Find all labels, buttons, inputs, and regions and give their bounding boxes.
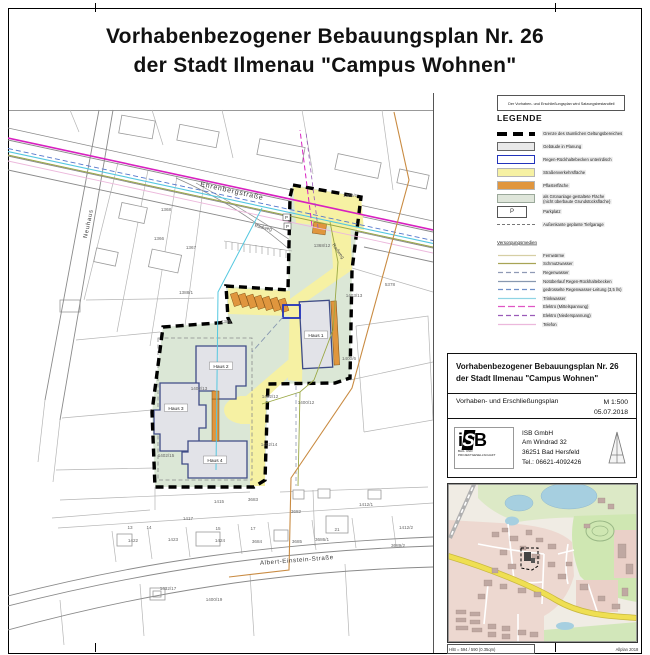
satzung-note-text: Der Vorhaben- und Erschließungsplan wird… (508, 101, 614, 106)
legend-utility-item: Regenwasser (497, 268, 639, 277)
legend-label: Telefon (542, 321, 558, 326)
utility-line-icon (497, 287, 537, 292)
legend-label: Regen-Rückhaltebecken unterirdisch (542, 157, 613, 162)
parcel-label: 1412/1 (359, 502, 373, 507)
page-title: Vorhabenbezogener Bebauungsplan Nr. 26 d… (0, 22, 650, 80)
legend-item: Regen-Rückhaltebecken unterirdisch (497, 153, 639, 166)
title-block-title: Vorhabenbezogener Bebauungsplan Nr. 26 d… (448, 354, 636, 393)
legend-utility-item: Trinkwasser (497, 294, 639, 303)
legend-item: Pflasterfläche (497, 179, 639, 192)
parcel-label: 1367 (186, 245, 197, 250)
legend-utility-item: Schmutzwasser (497, 260, 639, 269)
company-street: Am Windrad 32 (522, 438, 606, 448)
parcel-label: 1402/15 (158, 453, 175, 458)
company-address: ISB GmbH Am Windrad 32 36251 Bad Hersfel… (522, 429, 606, 468)
page-title-line2: der Stadt Ilmenau "Campus Wohnen" (0, 51, 650, 80)
minimap-caption: H/B = 594 / 590 (0.35qm) Allplan 2018 (447, 645, 638, 654)
utility-line-icon (497, 296, 537, 301)
legend-label: als Grünanlage gestaltete Fläche(nicht ü… (542, 193, 612, 203)
logo-subtext: BAU- UND PROJEKTGESELLSCHAFT (458, 450, 484, 458)
legend-label: gedrosselte Regenwasser-Leitung (3,5 l/s… (542, 287, 623, 292)
legend-swatch-fill-icon (497, 168, 537, 177)
satzung-note: Der Vorhaben- und Erschließungsplan wird… (497, 95, 625, 111)
house-label: Haus 2 (213, 364, 229, 370)
frame-tick (95, 3, 96, 12)
legend-label: Trinkwasser (542, 296, 567, 301)
legend-label: Grenze des räumlichen Geltungsbereiches (542, 131, 623, 136)
parcel-label: 1368/6 (343, 193, 357, 198)
legend-utility-item: Telefon (497, 320, 639, 329)
legend-utility-item: gedrosselte Regenwasser-Leitung (3,5 l/s… (497, 285, 639, 294)
parcel-label: 1368 (161, 207, 172, 212)
legend-swatch-p-icon: P (497, 206, 537, 218)
parcel-label: 21 (334, 527, 340, 532)
house-label: Haus 1 (308, 333, 324, 339)
parcel-label: 1422 (128, 538, 139, 543)
plot-size-note: H/B = 594 / 590 (0.35qm) (449, 647, 495, 652)
legend-swatch-fill-icon (497, 181, 537, 190)
parcel-label: 1402/13 (191, 386, 208, 391)
scale-date: M 1:500 05.07.2018 (594, 398, 628, 414)
legend-item: Außenkante geplante Tiefgarage (497, 218, 639, 231)
parcel-label: 1366 (154, 236, 165, 241)
parking-letter: P (286, 224, 289, 229)
parcel-label: 3685 (292, 539, 303, 544)
legend-area-items: Grenze des räumlichen GeltungsbereichesG… (497, 127, 639, 231)
legend-swatch-fill-icon (497, 142, 537, 151)
parcel-label: 1368/12 (314, 243, 331, 248)
legend-label: Schmutzwasser (542, 261, 574, 266)
parcel-label: 13 (127, 525, 133, 530)
legend-label: Elektro (Mittelspannung) (542, 304, 590, 309)
parcel-label: 1417 (183, 516, 194, 521)
legend-item: Gebäude in Planung (497, 140, 639, 153)
title-block-subtitle-row: Vorhaben- und Erschließungsplan M 1:500 … (448, 393, 636, 418)
house-label: Haus 3 (168, 406, 184, 412)
page-title-line1: Vorhabenbezogener Bebauungsplan Nr. 26 (0, 22, 650, 51)
legend-item: als Grünanlage gestaltete Fläche(nicht ü… (497, 192, 639, 205)
company-phone: Tel.: 06621-4092426 (522, 458, 606, 468)
legend-label: Pflasterfläche (542, 183, 570, 188)
legend-label: Fernwärme (542, 253, 565, 258)
parcel-label: 1402/12 (262, 394, 279, 399)
scale-label: M 1:500 (594, 398, 628, 408)
plan-sheet: Vorhabenbezogener Bebauungsplan Nr. 26 d… (0, 0, 650, 655)
parcel-label: 17 (250, 526, 256, 531)
legend-swatch-boundary-icon (497, 132, 537, 136)
utility-line-icon (497, 304, 537, 309)
legend-swatch-fill-icon (497, 194, 537, 203)
parcel-label: 1402/14 (261, 442, 278, 447)
utility-line-icon (497, 261, 537, 266)
parcel-label: 5378 (385, 282, 396, 287)
parcel-label: 3686/1 (315, 537, 329, 542)
title-block: Vorhabenbezogener Bebauungsplan Nr. 26 d… (447, 353, 637, 478)
legend-panel: LEGENDE Grenze des räumlichen Geltungsbe… (497, 113, 639, 328)
parcel-label: 1400/12 (298, 400, 315, 405)
legend-swatch-dash-icon (497, 224, 537, 225)
utility-line-icon (497, 270, 537, 275)
stadium (586, 521, 614, 541)
panel-divider (433, 93, 434, 653)
parcel-label: 3684 (252, 539, 263, 544)
parcel-label: 1412/2 (399, 525, 413, 530)
parcel-label: 1423 (168, 537, 179, 542)
parcel-label: 3689/2 (391, 543, 405, 548)
software-credit: Allplan 2018 (615, 647, 638, 652)
parcel-label: 1432/17 (160, 586, 177, 591)
parcel-label: 14 (146, 525, 152, 530)
legend-label: Parkplatz (542, 209, 562, 214)
frame-tick (555, 3, 556, 12)
legend-utility-item: Elektro (Niederspannung) (497, 311, 639, 320)
legend-swatch-fill-icon (497, 155, 537, 164)
parking-letter: P (285, 215, 288, 220)
legend-utility-item: Elektro (Mittelspannung) (497, 303, 639, 312)
parcel-label: 1400/19 (206, 597, 223, 602)
street-label: Albert-Einstein-Straße (260, 554, 334, 567)
utility-line-icon (497, 313, 537, 318)
parcel-label: 1388/1 (179, 290, 193, 295)
company-city: 36251 Bad Hersfeld (522, 448, 606, 458)
parcel-label: 3683 (248, 497, 259, 502)
legend-label: Regenwasser (542, 270, 570, 275)
utility-line-icon (497, 322, 537, 327)
company-name: ISB GmbH (522, 429, 606, 439)
legend-label: Notüberlauf Regen-Rückhaltebecken (542, 278, 613, 283)
legend-label: Außenkante geplante Tiefgarage (542, 222, 605, 227)
location-minimap (447, 483, 638, 643)
house-label: Haus 4 (207, 458, 223, 464)
parcel-label: 1386 (221, 319, 232, 324)
legend-utility-items: FernwärmeSchmutzwasserRegenwasserNotüber… (497, 251, 639, 328)
isb-logo: iSB BAU- UND PROJEKTGESELLSCHAFT (454, 427, 514, 469)
utility-line-icon (497, 279, 537, 284)
legend-item: Grenze des räumlichen Geltungsbereiches (497, 127, 639, 140)
title-block-company-row: iSB BAU- UND PROJEKTGESELLSCHAFT ISB Gmb… (448, 418, 636, 477)
paved-connector (212, 399, 219, 441)
site-plan-map: EhrenbergstraßeNeuhausAlbert-Einstein-St… (8, 93, 433, 652)
parcel-label: 1403/13 (346, 293, 363, 298)
parcel-label: 3682 (291, 509, 302, 514)
legend-label: Elektro (Niederspannung) (542, 313, 592, 318)
legend-utility-item: Fernwärme (497, 251, 639, 260)
tb-title-line1: Vorhabenbezogener Bebauungsplan Nr. 26 (456, 361, 628, 373)
parcel-label: 1424 (215, 538, 226, 543)
legend-label: Straßenverkehrsfläche (542, 170, 586, 175)
logo-s: S (462, 430, 476, 450)
lake (541, 483, 597, 509)
parcel-label: 15 (215, 526, 221, 531)
plan-type-label: Vorhaben- und Erschließungsplan (456, 398, 558, 414)
legend-utility-item: Notüberlauf Regen-Rückhaltebecken (497, 277, 639, 286)
legend-label: Gebäude in Planung (542, 144, 582, 149)
parcel-label: 1400/6 (342, 356, 356, 361)
utility-line-icon (497, 253, 537, 258)
parking-stalls (224, 241, 292, 258)
legend-heading: LEGENDE (497, 113, 639, 123)
date-label: 05.07.2018 (594, 408, 628, 418)
parcel-label: 1415 (214, 499, 225, 504)
legend-utilities-heading: Versorgungsmedien (497, 240, 582, 245)
north-arrow-icon (606, 430, 628, 466)
tb-title-line2: der Stadt Ilmenau "Campus Wohnen" (456, 373, 628, 385)
legend-item: PParkplatz (497, 205, 639, 218)
legend-item: Straßenverkehrsfläche (497, 166, 639, 179)
